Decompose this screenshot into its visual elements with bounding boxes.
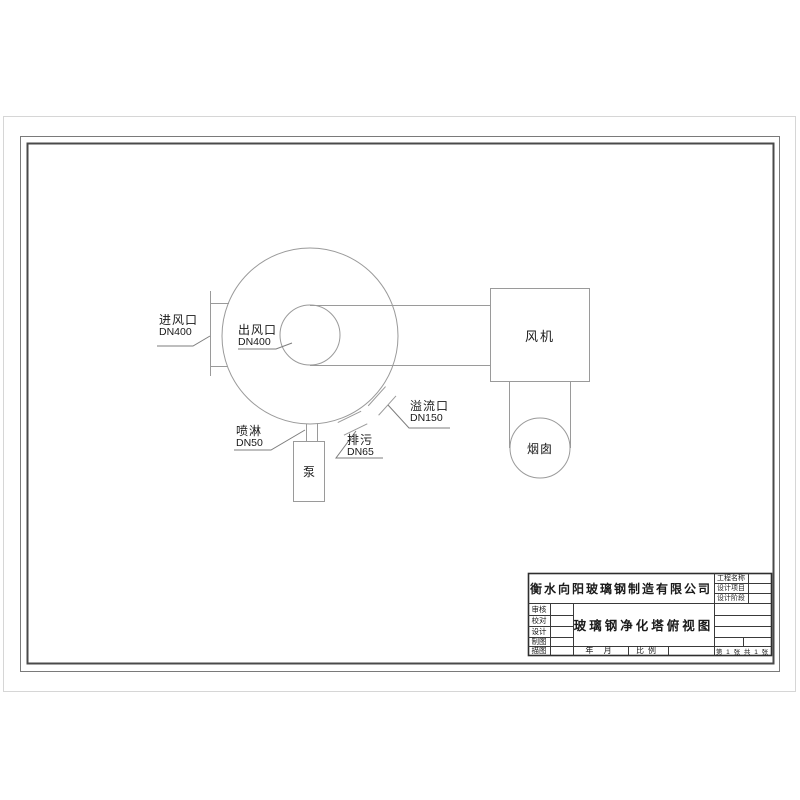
- overflow-stub: [368, 387, 396, 416]
- inlet-label: 进风口 DN400: [159, 314, 198, 338]
- outlet-duct: [310, 306, 490, 366]
- outlet-circle: [280, 305, 340, 365]
- proofread-label: 校对: [528, 615, 550, 626]
- drawing-sheet: 进风口 DN400 出风口 DN400 溢流口 DN150 排污 DN65 喷淋…: [0, 0, 800, 800]
- chimney-label: 烟囱: [510, 433, 570, 463]
- review-label: 审核: [528, 603, 550, 615]
- pump-label: 泵: [293, 441, 325, 502]
- drain-size: DN65: [347, 446, 374, 458]
- outlet-name: 出风口: [238, 324, 277, 336]
- design-stage-label: 设计阶段: [714, 593, 748, 603]
- company-name: 衡水向阳玻璃钢制造有限公司: [528, 573, 714, 603]
- scale-label: 比例: [628, 646, 668, 655]
- tracing-label: 描图: [528, 646, 550, 655]
- spray-size: DN50: [236, 437, 263, 449]
- overflow-name: 溢流口: [410, 400, 449, 412]
- drawing-canvas: [0, 0, 800, 800]
- drain-name: 排污: [347, 434, 374, 446]
- sheet-number: 第 1 张 共 1 张: [714, 646, 771, 655]
- project-name-label: 工程名称: [714, 573, 748, 583]
- outlet-label: 出风口 DN400: [238, 324, 277, 348]
- drain-label: 排污 DN65: [347, 434, 374, 458]
- date-label: 年 月: [573, 646, 628, 655]
- fan-label: 风机: [490, 288, 590, 382]
- spray-name: 喷淋: [236, 425, 263, 437]
- design-project-label: 设计项目: [714, 583, 748, 593]
- drain-stub: [338, 411, 368, 435]
- overflow-size: DN150: [410, 412, 449, 424]
- outlet-size: DN400: [238, 336, 277, 348]
- inlet-name: 进风口: [159, 314, 198, 326]
- inlet-size: DN400: [159, 326, 198, 338]
- overflow-label: 溢流口 DN150: [410, 400, 449, 424]
- spray-pipe: [307, 423, 318, 441]
- drawing-title: 玻璃钢净化塔俯视图: [573, 603, 714, 646]
- spray-label: 喷淋 DN50: [236, 425, 263, 449]
